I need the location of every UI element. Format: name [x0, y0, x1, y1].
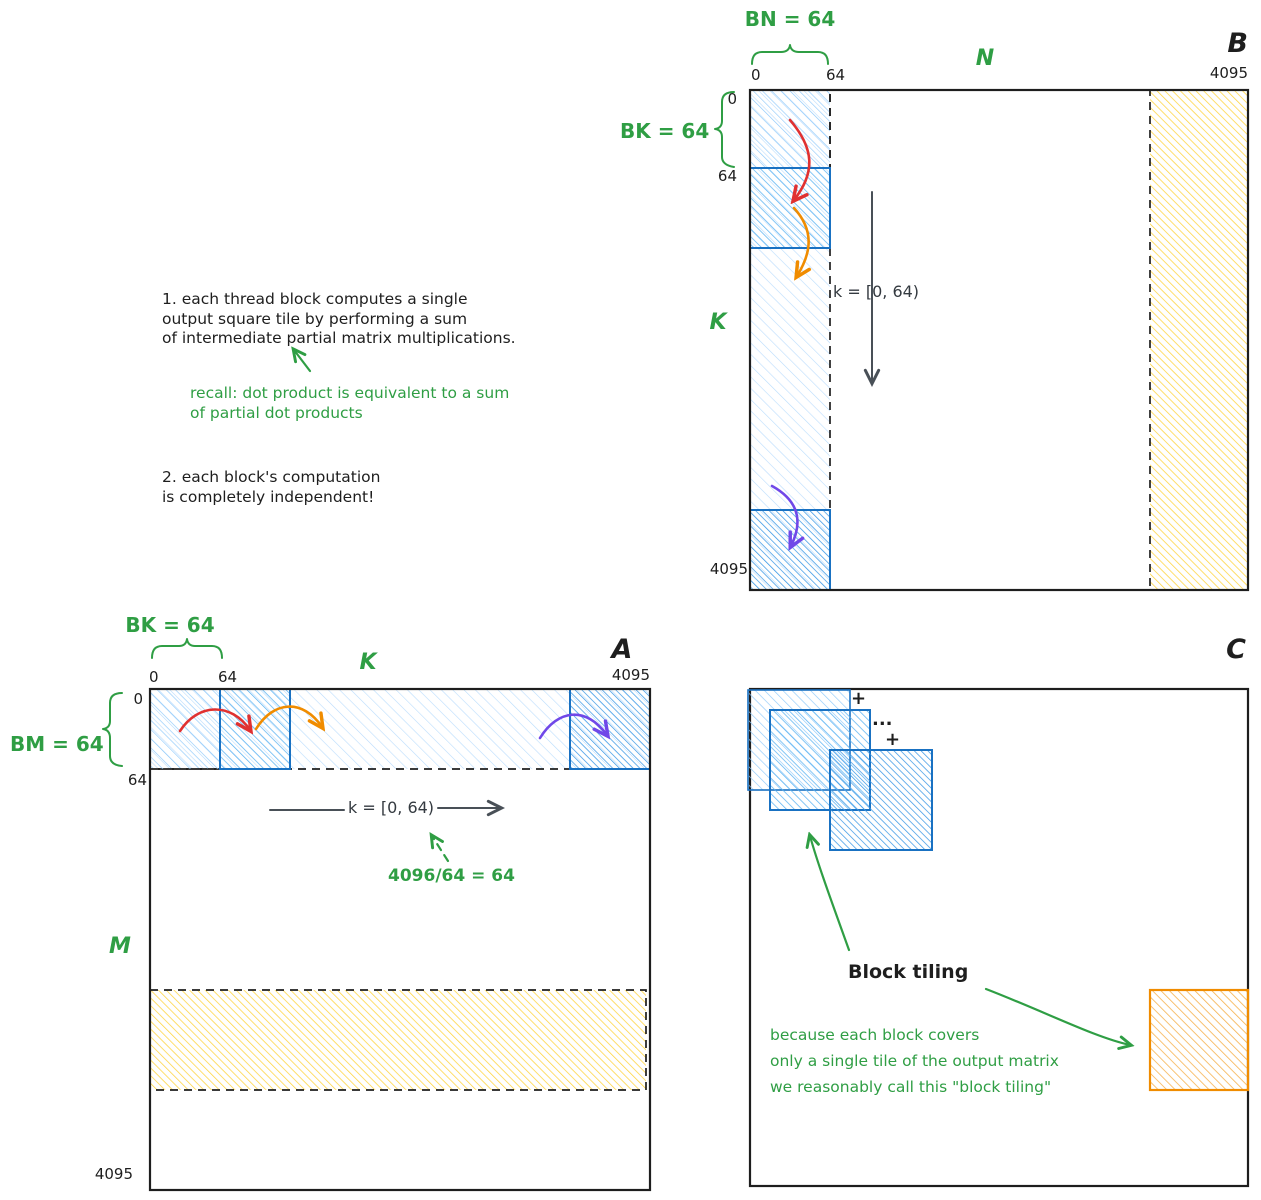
matrix-b-title: B — [1190, 28, 1248, 59]
matrix-c-title: C — [1212, 634, 1260, 665]
note-item2-line1: 2. each block's computation — [162, 468, 380, 488]
matrix-c-plus-second: + — [885, 730, 900, 751]
matrix-a-tile-first — [150, 689, 220, 769]
matrix-a-tile-last — [570, 689, 650, 769]
matrix-a-block-height-label: BM = 64 — [10, 733, 104, 756]
block-tiling-caption-line3: we reasonably call this "block tiling" — [770, 1074, 1059, 1100]
matrix-b-tile-first — [750, 90, 830, 168]
matrix-b-axis-n: N — [965, 46, 1005, 71]
note-item1-line1: 1. each thread block computes a single — [162, 290, 516, 310]
matrix-a-tick-left-4095: 4095 — [85, 1166, 133, 1183]
note-item2: 2. each block's computation is completel… — [162, 468, 380, 507]
matrix-c-ellipsis: ... — [872, 710, 893, 731]
matrix-a-title: A — [598, 634, 646, 665]
arrow-a-division-dashed-icon — [432, 836, 448, 861]
block-tiling-heading: Block tiling — [848, 962, 968, 984]
matrix-a-tick-left-64: 64 — [105, 772, 147, 789]
matrix-b-tick-top-4095: 4095 — [1190, 65, 1248, 82]
matrix-b-tick-left-0: 0 — [700, 91, 737, 108]
block-tiling-caption-line2: only a single tile of the output matrix — [770, 1048, 1059, 1074]
matrix-a-tick-top-0: 0 — [149, 669, 159, 686]
diagram-shapes — [0, 0, 1261, 1200]
arrow-note1-icon — [294, 350, 310, 371]
note-item1: 1. each thread block computes a single o… — [162, 290, 516, 349]
block-tiling-diagram: BN = 64 0 64 N B 4095 BK = 64 0 64 K 409… — [0, 0, 1261, 1200]
block-tiling-caption: because each block covers only a single … — [770, 1022, 1059, 1100]
note-item2-line2: is completely independent! — [162, 488, 380, 508]
matrix-a-axis-m: M — [100, 934, 140, 959]
brace-bk-a-icon — [152, 639, 222, 658]
matrix-a-k-range-label: k = [0, 64) — [348, 799, 434, 817]
note-recall: recall: dot product is equivalent to a s… — [190, 384, 509, 423]
matrix-b-k-range-label: k = [0, 64) — [833, 283, 919, 301]
matrix-a-block-width-label: BK = 64 — [120, 614, 220, 637]
matrix-b-tick-left-64: 64 — [700, 168, 737, 185]
matrix-b-block-height-label: BK = 64 — [620, 120, 708, 143]
matrix-c-partial-3 — [830, 750, 932, 850]
matrix-b-tick-top-64: 64 — [826, 67, 845, 84]
matrix-a-axis-k: K — [348, 650, 388, 675]
note-item1-line3: of intermediate partial matrix multiplic… — [162, 329, 516, 349]
matrix-b-tick-top-0: 0 — [751, 67, 761, 84]
matrix-b-tick-left-4095: 4095 — [700, 561, 748, 578]
matrix-b-tile-last — [750, 510, 830, 590]
block-tiling-caption-line1: because each block covers — [770, 1022, 1059, 1048]
matrix-c-plus-first: + — [851, 689, 866, 710]
matrix-b-tile-current — [750, 168, 830, 248]
matrix-b-block-width-label: BN = 64 — [740, 8, 840, 31]
note-item1-line2: output square tile by performing a sum — [162, 310, 516, 330]
matrix-a-tick-left-0: 0 — [105, 691, 143, 708]
matrix-a-division-note: 4096/64 = 64 — [388, 867, 515, 887]
arrow-c-to-blocks-icon — [810, 836, 849, 950]
matrix-a-tick-top-64: 64 — [218, 669, 237, 686]
note-recall-line2: of partial dot products — [190, 404, 509, 424]
matrix-a-tick-top-4095: 4095 — [600, 667, 650, 684]
matrix-b-last-column-band — [1150, 90, 1248, 590]
brace-bn-icon — [752, 45, 828, 64]
note-recall-line1: recall: dot product is equivalent to a s… — [190, 384, 509, 404]
matrix-b-axis-k: K — [700, 310, 736, 335]
matrix-a-last-row-band — [150, 990, 646, 1090]
matrix-c-output-tile — [1150, 990, 1248, 1090]
